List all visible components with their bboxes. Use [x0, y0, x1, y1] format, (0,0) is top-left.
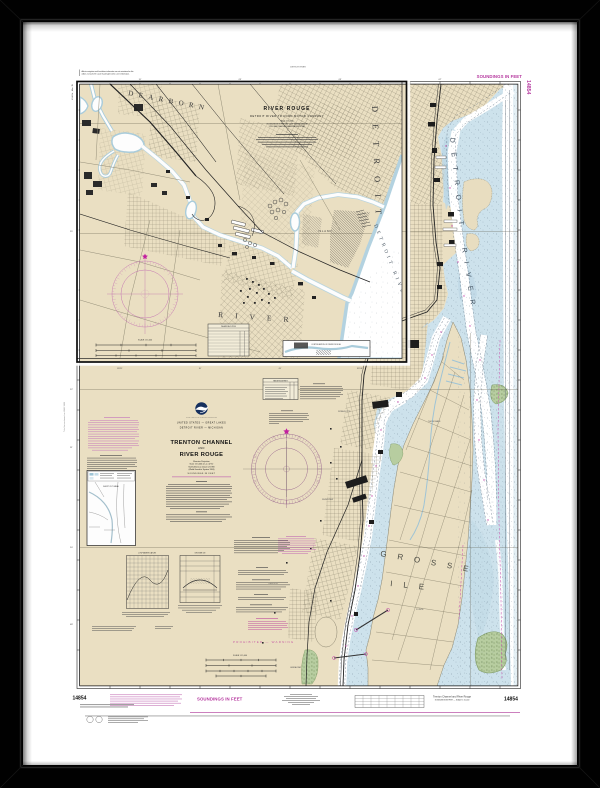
svg-text:SCALE 1:15,000: SCALE 1:15,000	[138, 339, 152, 342]
svg-text:Aids to navigation and chart d: Aids to navigation and chart datum infor…	[82, 70, 134, 73]
svg-text:SOUNDINGS IN FEET: SOUNDINGS IN FEET	[188, 473, 216, 475]
svg-text:RIVER ROUGE: RIVER ROUGE	[263, 106, 310, 112]
svg-text:DETROIT RIVER TO FORD MOTOR CO: DETROIT RIVER TO FORD MOTOR COMPANY	[250, 114, 324, 118]
svg-text:SOUNDINGS IN FEET — SCALE 1:15: SOUNDINGS IN FEET — SCALE 1:15,000	[435, 699, 469, 702]
svg-text:14854: 14854	[525, 80, 531, 95]
svg-text:UNITED STATES — GREAT LAKES: UNITED STATES — GREAT LAKES	[177, 422, 226, 425]
svg-text:SOUNDINGS IN FEET: SOUNDINGS IN FEET	[197, 697, 243, 702]
svg-text:LOW WATER DATUM: LOW WATER DATUM	[138, 552, 156, 555]
svg-text:RIVER ROUGE: RIVER ROUGE	[180, 452, 224, 458]
svg-text:Scale 1:15,000: Scale 1:15,000	[281, 121, 294, 123]
svg-text:WYANDOTTE: WYANDOTTE	[338, 410, 351, 413]
svg-text:Mercator Projection: Mercator Projection	[193, 460, 209, 463]
svg-text:RIVERVIEW: RIVERVIEW	[322, 499, 333, 501]
svg-text:THOROFARE: THOROFARE	[428, 420, 441, 423]
svg-text:(World Geodetic System 1984): (World Geodetic System 1984)	[189, 468, 215, 471]
svg-text:83°11': 83°11'	[117, 368, 123, 370]
svg-text:POINTE: POINTE	[416, 609, 424, 611]
svg-text:Trenton Channel and River Roug: Trenton Channel and River Rouge	[433, 696, 472, 699]
svg-text:47th Ed., Mar. 15: 47th Ed., Mar. 15	[71, 83, 74, 100]
svg-text:GROSSE ILE: GROSSE ILE	[195, 553, 207, 555]
svg-text:ISLAND: ISLAND	[318, 229, 332, 233]
svg-text:575.8 FEET ABOVE MEAN WATER LE: 575.8 FEET ABOVE MEAN WATER LEVEL	[269, 125, 306, 128]
svg-text:AND: AND	[198, 446, 205, 450]
svg-text:edition. Consult U.S. Coast Gu: edition. Consult U.S. Coast Guard Light …	[82, 73, 130, 76]
svg-text:CONTINUATION OF RIVER ROUGE: CONTINUATION OF RIVER ROUGE	[311, 343, 341, 346]
svg-text:Tidal datum based on IGLD 1985: Tidal datum based on IGLD 1985	[63, 402, 66, 432]
svg-text:PROHIBITED — WARNING: PROHIBITED — WARNING	[233, 640, 294, 644]
svg-text:SHORT CUT CANAL: SHORT CUT CANAL	[103, 485, 119, 488]
svg-text:HEIGHTS IN FEET: HEIGHTS IN FEET	[273, 380, 287, 382]
svg-text:North American Datum of 1983: North American Datum of 1983	[189, 465, 215, 468]
svg-text:14854: 14854	[504, 697, 518, 703]
svg-text:SOUNDINGS IN FEET AT LOW WATER: SOUNDINGS IN FEET AT LOW WATER DATUM	[267, 122, 308, 125]
svg-text:DETROIT RIVER: DETROIT RIVER	[290, 67, 306, 69]
svg-text:TRENTON CHANNEL: TRENTON CHANNEL	[170, 440, 232, 446]
svg-text:14854: 14854	[73, 696, 87, 702]
svg-text:83°08': 83°08'	[357, 368, 363, 370]
svg-text:SOUNDINGS IN FEET: SOUNDINGS IN FEET	[477, 74, 523, 79]
svg-text:GIBRALTAR: GIBRALTAR	[290, 666, 302, 669]
svg-text:SCALE 1:15,000: SCALE 1:15,000	[233, 654, 247, 657]
svg-text:DETROIT RIVER — MICHIGAN: DETROIT RIVER — MICHIGAN	[180, 427, 224, 430]
svg-text:Scale 1:15,000 at Lat. 42°11': Scale 1:15,000 at Lat. 42°11'	[189, 463, 214, 466]
